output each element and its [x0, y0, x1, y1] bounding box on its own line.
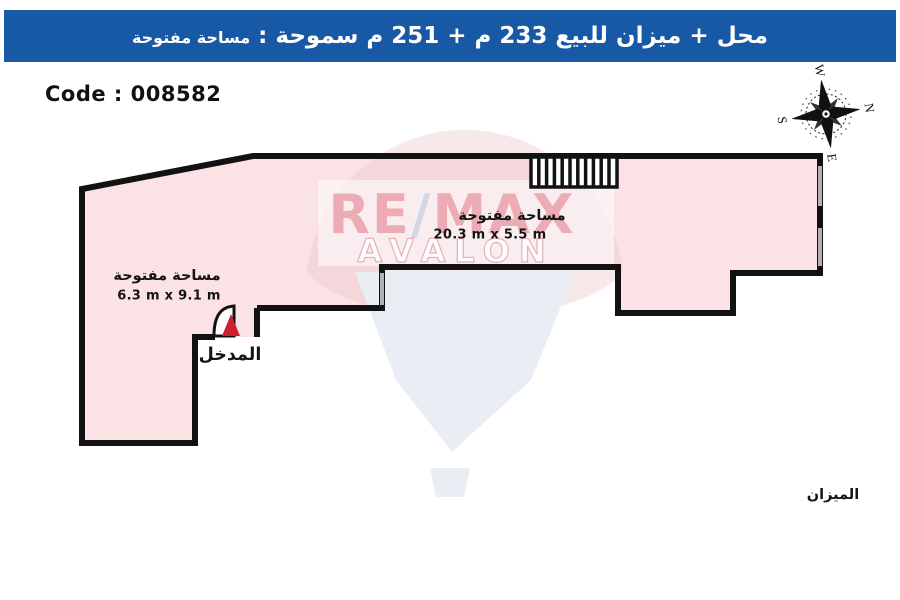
window-right-lower — [818, 228, 822, 266]
area-left-name: مساحة مفتوحة — [113, 268, 220, 284]
listing-floorplan-page: محل + ميزان للبيع 233 م + 251 م سموحة : … — [0, 0, 900, 600]
window-right-upper — [818, 166, 822, 206]
location-label: الميزان — [807, 487, 859, 503]
balloon-basket — [430, 468, 470, 497]
window-middle — [380, 273, 384, 305]
area-top-dimensions: 20.3 m x 5.5 m — [434, 228, 547, 243]
entrance-label: المدخل — [199, 345, 262, 365]
balloon-lower-cone — [355, 272, 575, 452]
staircase — [531, 157, 617, 187]
area-top-name: مساحة مفتوحة — [458, 208, 565, 224]
area-left-dimensions: 6.3 m x 9.1 m — [117, 289, 221, 304]
